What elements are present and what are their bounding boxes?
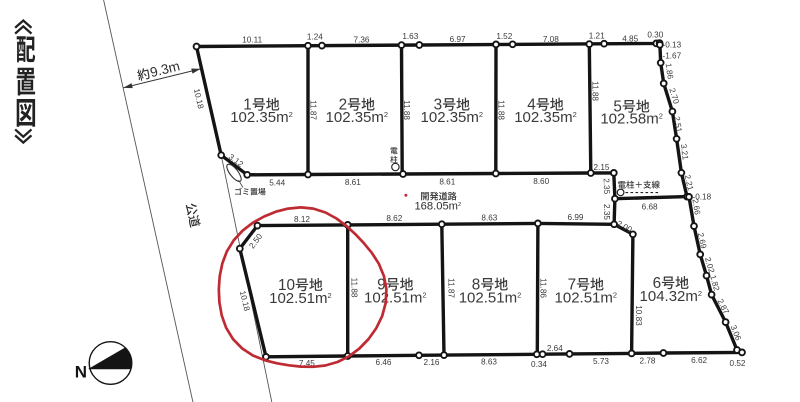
svg-text:11.87: 11.87: [309, 100, 318, 120]
svg-text:2.35: 2.35: [602, 204, 611, 220]
svg-text:102.51m2: 102.51m2: [555, 290, 618, 307]
svg-text:11.86: 11.86: [539, 278, 548, 298]
svg-text:-1.67: -1.67: [663, 52, 682, 61]
svg-text:8.63: 8.63: [481, 213, 497, 222]
svg-text:102.35m2: 102.35m2: [326, 109, 389, 126]
svg-text:6.99: 6.99: [568, 213, 584, 222]
svg-text:5.44: 5.44: [269, 178, 285, 187]
svg-text:168.05m2: 168.05m2: [414, 201, 461, 213]
svg-text:-0.13: -0.13: [663, 41, 682, 50]
svg-text:102.58m2: 102.58m2: [600, 111, 663, 128]
svg-text:102.51m2: 102.51m2: [364, 290, 427, 307]
svg-text:6.46: 6.46: [376, 358, 392, 367]
svg-text:8.12: 8.12: [294, 215, 310, 224]
svg-text:102.51m2: 102.51m2: [459, 290, 522, 307]
svg-text:102.35m2: 102.35m2: [514, 109, 577, 126]
svg-text:0.52: 0.52: [730, 359, 746, 368]
svg-text:10.83: 10.83: [634, 305, 643, 326]
svg-text:11.88: 11.88: [496, 100, 505, 120]
svg-text:2.78: 2.78: [640, 357, 656, 366]
svg-text:9.3m: 9.3m: [148, 58, 181, 80]
svg-text:1.24: 1.24: [307, 32, 323, 41]
svg-text:5.73: 5.73: [593, 357, 609, 366]
svg-text:6.62: 6.62: [691, 356, 707, 365]
svg-text:6.68: 6.68: [642, 203, 658, 212]
svg-text:102.35m2: 102.35m2: [421, 109, 484, 126]
svg-text:1.52: 1.52: [496, 32, 512, 41]
svg-text:1.21: 1.21: [589, 32, 605, 41]
svg-text:1.86: 1.86: [664, 63, 675, 81]
svg-text:7.36: 7.36: [354, 36, 370, 45]
svg-text:0.30: 0.30: [647, 31, 663, 40]
svg-text:7.08: 7.08: [543, 35, 559, 44]
svg-text:8.63: 8.63: [481, 357, 497, 366]
svg-text:2.35: 2.35: [602, 178, 612, 195]
svg-text:102.35m2: 102.35m2: [230, 109, 293, 126]
svg-text:4.85: 4.85: [622, 35, 638, 44]
svg-text:8.60: 8.60: [533, 177, 549, 186]
svg-text:11.87: 11.87: [446, 278, 455, 298]
svg-text:10.11: 10.11: [242, 36, 262, 45]
svg-text:0.34: 0.34: [531, 360, 547, 369]
svg-text:2.16: 2.16: [424, 358, 440, 367]
svg-text:11.88: 11.88: [350, 278, 359, 298]
svg-text:11.88: 11.88: [402, 100, 411, 120]
svg-text:2.64: 2.64: [547, 344, 563, 353]
svg-text:102.51m2: 102.51m2: [269, 290, 332, 307]
svg-text:2.15: 2.15: [594, 163, 610, 172]
svg-text:10.18: 10.18: [192, 88, 205, 110]
svg-text:11.88: 11.88: [590, 81, 599, 101]
svg-text:8.61: 8.61: [345, 178, 361, 187]
svg-text:8.62: 8.62: [386, 214, 402, 223]
svg-text:8.61: 8.61: [439, 178, 455, 187]
svg-text:104.32m2: 104.32m2: [640, 288, 703, 305]
svg-text:1.63: 1.63: [402, 32, 418, 41]
svg-text:N: N: [75, 362, 87, 381]
svg-text:6.97: 6.97: [450, 35, 466, 44]
